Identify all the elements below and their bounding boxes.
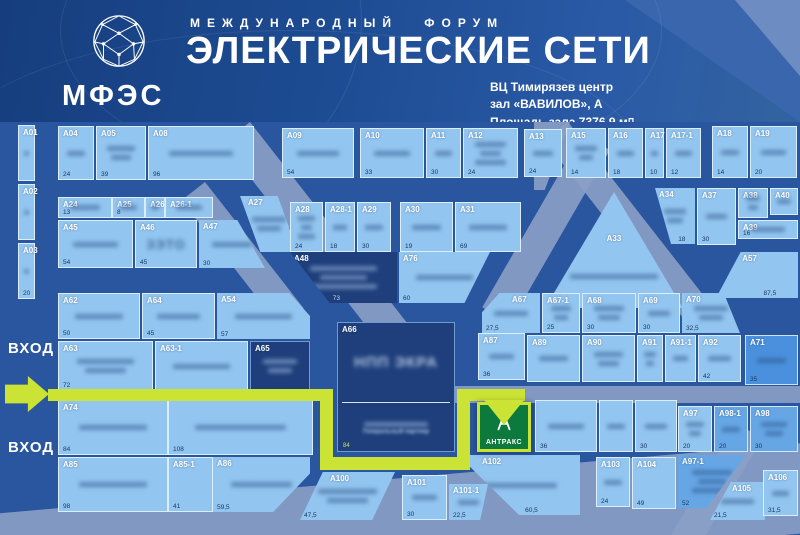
blurred-company-name [320, 275, 366, 280]
blurred-company-name [539, 356, 569, 361]
booth-A17-1: A17-112 [666, 128, 701, 178]
booth-A05: A0539 [96, 126, 146, 180]
booth-A03: A0320 [18, 243, 35, 299]
booth-A89: A89 [527, 335, 580, 382]
booth-unlabeled-3: 30 [635, 400, 677, 452]
blurred-company-name [24, 210, 30, 215]
booth-A91-1: A91-1 [665, 335, 696, 382]
blurred-company-name [570, 274, 657, 279]
floor-plan-page: A01A02A0320A0424A0539A0896A0954A1033A113… [0, 0, 800, 535]
blurred-company-name [667, 218, 683, 223]
highlight-exhibitor-name: АНТРАКС [486, 439, 522, 446]
booth-area: 24 [295, 243, 302, 250]
booth-A18: A1814 [712, 126, 748, 178]
booth-area: 13 [63, 209, 70, 216]
blurred-company-name [195, 425, 285, 430]
booth-A104: A10449 [632, 457, 676, 509]
booth-area: 30 [203, 260, 210, 267]
booth-company-name: ЗЭТО [146, 237, 185, 252]
booth-A38: A38 [738, 188, 768, 218]
blurred-company-name [648, 311, 670, 316]
booth-A29: A2930 [357, 202, 391, 252]
booth-area: 60,5 [525, 507, 538, 514]
blurred-company-name [79, 425, 146, 430]
blurred-company-name [231, 482, 291, 487]
booth-area: 25 [547, 324, 554, 331]
booth-area: 16 [743, 230, 750, 237]
blurred-company-name [698, 479, 727, 484]
booth-area: 32,5 [686, 325, 699, 332]
booth-area: 30 [407, 511, 414, 518]
booth-A69: A6930 [638, 293, 680, 333]
booth-area: 30 [702, 236, 709, 243]
booth-A76: A7660 [399, 252, 490, 303]
booth-area: 59,5 [217, 504, 230, 511]
booth-A13: A1324 [524, 129, 562, 177]
blurred-company-name [173, 364, 229, 369]
booth-area: 45 [140, 259, 147, 266]
blurred-company-name [689, 431, 701, 436]
blurred-company-name [252, 217, 286, 222]
booth-A68: A6830 [582, 293, 636, 333]
blurred-company-name [598, 315, 619, 320]
blurred-company-name [673, 356, 688, 361]
blurred-company-name [761, 422, 787, 427]
booth-area: 49 [637, 500, 644, 507]
venue-line: зал «ВАВИЛОВ», А [490, 96, 634, 113]
blurred-company-name [772, 491, 790, 496]
booth-A01: A01 [18, 125, 35, 181]
booth-A11: A1130 [426, 128, 461, 178]
partner-caption: Генеральный партнер [363, 429, 429, 435]
booth-area: 20 [683, 443, 690, 450]
booth-area: 98 [63, 503, 70, 510]
booth-area: 96 [153, 171, 160, 178]
booth-area: 20 [719, 443, 726, 450]
booth-A12: A1224 [463, 128, 518, 178]
booth-area: 45 [147, 330, 154, 337]
blurred-company-name [469, 225, 507, 230]
booth-A57: A5787,5 [716, 252, 798, 298]
entrance-label-1: ВХОД [8, 340, 54, 357]
entrance-label-2: ВХОД [8, 439, 54, 456]
blurred-company-name [604, 480, 621, 485]
booth-A98: A9830 [750, 406, 798, 452]
booth-A15: A1514 [566, 128, 606, 178]
booth-A62: A6250 [58, 293, 140, 339]
booth-company-name: НПП ЭКРА [354, 354, 438, 371]
blurred-company-name [675, 151, 693, 156]
booth-A74-right: 108 [168, 400, 313, 455]
booth-area: 24 [601, 498, 608, 505]
blurred-company-name [24, 151, 30, 156]
booth-area: 33 [365, 169, 372, 176]
blurred-company-name [176, 205, 202, 210]
booth-A71: A7135 [745, 335, 798, 385]
blurred-company-name [298, 216, 315, 221]
blurred-company-name [327, 498, 368, 503]
venue-info: ВЦ Тимирязев центр зал «ВАВИЛОВ», А Площ… [490, 79, 634, 122]
booth-A87: A8736 [478, 333, 525, 380]
blurred-company-name [777, 199, 790, 204]
booth-A19: A1920 [750, 126, 797, 178]
booth-A85-1: A85-141 [168, 457, 213, 512]
booth-area: 108 [173, 446, 184, 453]
blurred-company-name [412, 495, 436, 500]
blurred-company-name [765, 431, 783, 436]
blurred-company-name [458, 500, 480, 505]
blurred-company-name [24, 269, 30, 274]
booth-A66: A66НПП ЭКРАГенеральный партнер84 [337, 322, 455, 452]
blurred-company-name [111, 155, 130, 160]
booth-A67-1: A67-125 [542, 293, 580, 333]
booth-A46: A46ЗЭТО45 [135, 220, 197, 268]
booth-A101: A10130 [402, 475, 447, 520]
blurred-company-name [257, 226, 281, 231]
blurred-company-name [575, 146, 596, 151]
booth-A16: A1618 [608, 128, 643, 178]
booth-area: 50 [63, 330, 70, 337]
booth-area: 14 [571, 169, 578, 176]
booth-A25: A258 [112, 197, 145, 218]
entrance-arrow-icon [5, 376, 49, 412]
booth-A39: A3916 [738, 220, 798, 239]
blurred-company-name [298, 234, 315, 239]
blurred-company-name [412, 225, 442, 230]
booth-area: 42 [703, 373, 710, 380]
mfes-globe-logo-icon [90, 12, 148, 75]
booth-area: 30 [431, 169, 438, 176]
blurred-company-name [748, 205, 758, 210]
booth-A24: A2413 [58, 197, 112, 218]
booth-area: 57 [221, 331, 228, 338]
booth-A91: A91 [637, 335, 663, 382]
booth-area: 8 [117, 209, 121, 216]
booth-area: 35 [750, 376, 757, 383]
blurred-company-name [722, 427, 739, 432]
blurred-company-name [268, 368, 292, 373]
booth-area: 21,5 [714, 512, 727, 519]
booth-area: 73 [333, 295, 340, 302]
blurred-company-name [706, 214, 726, 219]
blurred-company-name [489, 354, 515, 359]
blurred-company-name [761, 150, 787, 155]
booth-area: 19 [405, 243, 412, 250]
blurred-company-name [333, 225, 348, 230]
blurred-company-name [548, 424, 584, 429]
booth-area: 47,5 [304, 512, 317, 519]
blurred-company-name [617, 151, 635, 156]
blurred-company-name [310, 266, 377, 271]
blurred-company-name [692, 470, 733, 475]
booth-A97: A9720 [678, 406, 712, 452]
booth-A37: A3730 [697, 188, 736, 245]
blurred-company-name [318, 489, 377, 494]
blurred-company-name [594, 352, 624, 357]
blurred-company-name [699, 315, 723, 320]
blurred-company-name [664, 209, 686, 214]
booth-A63-1: A63-1 [155, 341, 248, 391]
booth-A92: A9242 [698, 335, 741, 382]
logo-text: МФЭС [62, 80, 164, 113]
blurred-company-name [721, 150, 739, 155]
booth-A103: A10324 [596, 457, 630, 507]
booth-area: 54 [63, 259, 70, 266]
blurred-company-name [310, 284, 377, 289]
booth-area: 31,5 [768, 507, 781, 514]
booth-A106: A10631,5 [763, 470, 798, 516]
booth-area: 18 [330, 243, 337, 250]
booth-area: 18 [678, 236, 685, 243]
booth-area: 60 [403, 295, 410, 302]
blurred-company-name [77, 359, 134, 364]
blurred-company-name [365, 225, 382, 230]
booth-area: 72 [63, 382, 70, 389]
booth-area: 30 [755, 443, 762, 450]
blurred-company-name [212, 242, 252, 247]
booth-area: 18 [613, 169, 620, 176]
blurred-company-name [533, 151, 553, 156]
booth-area: 24 [529, 168, 536, 175]
booth-A10: A1033 [360, 128, 424, 178]
booth-area: 39 [101, 171, 108, 178]
blurred-company-name [120, 205, 137, 210]
booth-area: 52 [682, 500, 689, 507]
booth-A28-1: A28-118 [325, 202, 355, 252]
booth-A28: A2824 [290, 202, 323, 252]
booth-area: 36 [540, 443, 547, 450]
forum-supertitle: МЕЖДУНАРОДНЫЙ ФОРУМ [190, 16, 504, 30]
booth-area: 69 [460, 243, 467, 250]
booth-unlabeled-2 [599, 400, 633, 452]
booth-area: 84 [343, 443, 350, 449]
booth-A30: A3019 [400, 202, 453, 252]
booth-A64: A6445 [142, 293, 215, 339]
blurred-company-name [79, 482, 146, 487]
booth-A04: A0424 [58, 126, 94, 180]
booth-A17: A1710 [645, 128, 664, 178]
booth-A63: A6372 [58, 341, 153, 391]
booth-area: 41 [173, 503, 180, 510]
blurred-company-name [75, 314, 124, 319]
blurred-company-name [751, 227, 785, 232]
blurred-company-name [107, 146, 135, 151]
blurred-company-name [416, 275, 472, 280]
blurred-company-name [757, 358, 787, 363]
blurred-company-name [644, 352, 656, 357]
booth-A70: A7032,5 [682, 293, 740, 333]
booth-A40: A40 [770, 188, 798, 215]
booth-area: 30 [587, 324, 594, 331]
booth-A31: A3169 [455, 202, 521, 252]
booth-area: 22,5 [453, 512, 466, 519]
booth-A02: A02 [18, 184, 35, 240]
booth-A26: A26 [145, 197, 165, 218]
blurred-company-name [157, 314, 200, 319]
booth-A85: A8598 [58, 457, 168, 512]
venue-line: ВЦ Тимирязев центр [490, 79, 634, 96]
blurred-company-name [475, 160, 506, 165]
booth-area: 36 [483, 371, 490, 378]
blurred-company-name [235, 314, 292, 319]
blurred-company-name [651, 151, 658, 156]
route-segment [320, 457, 470, 470]
booth-area: 20 [23, 290, 30, 297]
blurred-company-name [169, 151, 234, 156]
blurred-company-name [494, 311, 528, 316]
booth-area: 30 [362, 243, 369, 250]
booth-area: 14 [717, 169, 724, 176]
blurred-company-name [686, 422, 703, 427]
booth-A48: A4873 [290, 252, 397, 303]
route-segment [457, 389, 525, 401]
blurred-company-name [374, 151, 411, 156]
booth-area: 84 [63, 446, 70, 453]
blurred-company-name [475, 142, 506, 147]
booth-area: 87,5 [764, 290, 777, 297]
booth-area: 54 [287, 169, 294, 176]
blurred-company-name [301, 225, 313, 230]
blurred-company-name [594, 306, 624, 311]
blurred-company-name [435, 151, 453, 156]
blurred-company-name [694, 306, 728, 311]
blurred-company-name [554, 315, 568, 320]
blurred-company-name [85, 368, 125, 373]
booth-area: 24 [468, 169, 475, 176]
booth-A34: A3418 [655, 188, 695, 244]
booth-area: 30 [643, 324, 650, 331]
blurred-company-name [746, 196, 761, 201]
route-segment [48, 389, 333, 401]
blurred-company-name [67, 151, 85, 156]
booth-unlabeled-1: 36 [535, 400, 597, 452]
route-segment [457, 395, 470, 470]
page-title: ЭЛЕКТРИЧЕСКИЕ СЕТИ [186, 30, 651, 73]
booth-area: 24 [63, 171, 70, 178]
blurred-company-name [598, 361, 619, 366]
venue-line: Площадь зала 7376,9 м▯ [490, 114, 634, 122]
blurred-company-name [579, 155, 594, 160]
booth-area: 12 [671, 169, 678, 176]
header-banner: МФЭС МЕЖДУНАРОДНЫЙ ФОРУМ ЭЛЕКТРИЧЕСКИЕ С… [0, 0, 800, 122]
blurred-company-name [297, 151, 339, 156]
blurred-company-name [263, 359, 297, 364]
booth-A45: A4554 [58, 220, 133, 268]
blurred-company-name [481, 483, 558, 488]
blurred-company-name [151, 205, 159, 210]
booth-area: 30 [640, 443, 647, 450]
blurred-company-name [480, 151, 502, 156]
booth-A98-1: A98-120 [714, 406, 748, 452]
booth-A26-1: A26-1 [165, 197, 213, 218]
blurred-company-name [551, 306, 571, 311]
blurred-company-name [645, 424, 667, 429]
booth-area: 20 [755, 169, 762, 176]
blurred-company-name [646, 361, 654, 366]
blurred-company-name [73, 242, 117, 247]
booth-A74: A7484 [58, 400, 168, 455]
blurred-company-name [607, 424, 624, 429]
booth-area: 10 [650, 169, 657, 176]
blurred-company-name [708, 356, 731, 361]
booth-A08: A0896 [148, 126, 254, 180]
blurred-company-name [70, 205, 100, 210]
booth-A09: A0954 [282, 128, 354, 178]
booth-A90: A90 [582, 335, 635, 382]
booth-area: 27,5 [486, 325, 499, 332]
blurred-company-name [721, 499, 753, 504]
booth-A65: A65 [250, 341, 310, 391]
